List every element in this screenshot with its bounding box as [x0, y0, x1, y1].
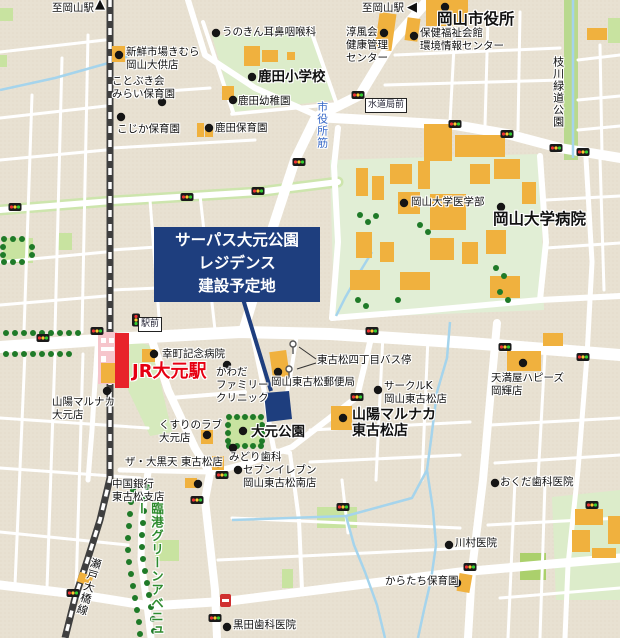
tree-icon	[134, 607, 140, 613]
tree-icon	[417, 222, 423, 228]
tree-icon	[140, 520, 146, 526]
tree-icon	[132, 595, 138, 601]
landmark-building	[470, 164, 490, 184]
landmark-building	[356, 168, 368, 196]
landmark-building	[462, 242, 478, 264]
landmark-dot-icon	[117, 113, 125, 121]
traffic-signal-icon	[577, 148, 590, 156]
tree-icon	[259, 422, 265, 428]
tree-icon	[66, 351, 72, 357]
landmark-dot-icon	[203, 431, 211, 439]
traffic-signal-icon	[252, 187, 265, 195]
tree-icon	[128, 571, 134, 577]
landmark-dot-icon	[497, 203, 505, 211]
traffic-signal-icon	[181, 193, 194, 201]
tree-icon	[365, 219, 371, 225]
traffic-signal-icon	[586, 501, 599, 509]
tree-icon	[139, 544, 145, 550]
map-canvas: 至岡山駅 ▲ うのきん耳鼻咽喉科 新鮮市場きむら 岡山大供店 ことぶき会 みらい…	[0, 0, 620, 638]
tree-icon	[125, 535, 131, 541]
tree-icon	[125, 547, 131, 553]
tree-icon	[57, 330, 63, 336]
landmark-dot-icon	[223, 361, 231, 369]
landmark-dot-icon	[234, 466, 242, 474]
traffic-signal-icon	[132, 314, 140, 327]
landmark-building	[575, 509, 603, 525]
landmark-building	[543, 333, 563, 346]
landmark-building	[372, 176, 384, 200]
landmark-dot-icon	[441, 3, 449, 11]
traffic-signal-icon	[464, 563, 477, 571]
station-building	[115, 333, 129, 388]
tree-icon	[355, 297, 361, 303]
tree-icon	[146, 592, 152, 598]
road	[518, 12, 520, 130]
station-detail	[101, 356, 106, 362]
tree-icon	[493, 265, 499, 271]
tree-icon	[130, 487, 136, 493]
construction-site-label: サーパス大元公園 レジデンス 建設予定地	[154, 227, 320, 302]
landmark-dot-icon	[115, 51, 123, 59]
tree-icon	[130, 583, 136, 589]
tree-icon	[3, 330, 9, 336]
green-area	[58, 233, 72, 250]
green-area	[564, 0, 578, 160]
tree-icon	[0, 252, 6, 258]
traffic-signal-icon	[501, 130, 514, 138]
tree-icon	[128, 499, 134, 505]
tree-icon	[126, 523, 132, 529]
station-detail	[101, 347, 114, 351]
traffic-signal-icon	[9, 203, 22, 211]
tree-icon	[141, 508, 147, 514]
landmark-building	[608, 516, 620, 544]
landmark-dot-icon	[491, 479, 499, 487]
tree-icon	[144, 484, 150, 490]
landmark-building	[424, 124, 452, 161]
tree-icon	[57, 351, 63, 357]
landmark-dot-icon	[212, 29, 220, 37]
tree-icon	[258, 414, 264, 420]
station-detail	[101, 338, 106, 343]
tree-icon	[1, 236, 7, 242]
landmark-building	[356, 232, 372, 258]
landmark-dot-icon	[103, 387, 111, 395]
tree-icon	[150, 616, 156, 622]
tree-icon	[75, 330, 81, 336]
tree-icon	[12, 351, 18, 357]
tree-icon	[363, 303, 369, 309]
site-polygon	[264, 391, 292, 422]
tree-icon	[139, 532, 145, 538]
tree-icon	[151, 628, 157, 634]
landmark-dot-icon	[239, 427, 247, 435]
tree-icon	[259, 430, 265, 436]
traffic-signal-icon	[449, 120, 462, 128]
landmark-dot-icon	[519, 359, 527, 367]
tree-icon	[148, 604, 154, 610]
tree-icon	[225, 430, 231, 436]
tree-icon	[29, 244, 35, 250]
landmark-dot-icon	[158, 98, 166, 106]
tree-icon	[1, 259, 7, 265]
landmark-dot-icon	[400, 199, 408, 207]
green-area	[0, 8, 13, 21]
tree-icon	[127, 511, 133, 517]
traffic-signal-icon	[191, 496, 204, 504]
landmark-building	[572, 530, 590, 552]
tree-icon	[357, 212, 363, 218]
green-area	[155, 540, 179, 561]
landmark-building	[262, 50, 278, 62]
tree-icon	[29, 252, 35, 258]
tree-icon	[10, 259, 16, 265]
traffic-signal-icon	[91, 327, 104, 335]
landmark-dot-icon	[339, 414, 347, 422]
tree-icon	[234, 414, 240, 420]
tree-icon	[10, 236, 16, 242]
tree-icon	[21, 330, 27, 336]
tree-icon	[21, 351, 27, 357]
tree-icon	[258, 443, 264, 449]
tree-icon	[48, 351, 54, 357]
traffic-signal-icon	[352, 91, 365, 99]
tree-icon	[373, 213, 379, 219]
road	[120, 470, 210, 472]
landmark-building	[490, 276, 520, 298]
landmark-building	[390, 164, 412, 184]
tree-icon	[30, 351, 36, 357]
traffic-signal-icon	[577, 353, 590, 361]
landmark-dot-icon	[214, 459, 222, 467]
landmark-building	[430, 194, 466, 230]
tree-icon	[505, 297, 511, 303]
tree-icon	[395, 297, 401, 303]
landmark-dot-icon	[205, 124, 213, 132]
landmark-building	[522, 182, 536, 204]
station-detail	[109, 338, 114, 343]
tree-icon	[0, 244, 6, 250]
landmark-dot-icon	[380, 29, 388, 37]
green-area	[282, 569, 293, 588]
landmark-dot-icon	[445, 541, 453, 549]
landmark-dot-icon	[374, 386, 382, 394]
landmark-dot-icon	[410, 32, 418, 40]
traffic-signal-icon	[550, 144, 563, 152]
landmark-dot-icon	[194, 480, 202, 488]
traffic-signal-icon	[209, 614, 222, 622]
landmark-building	[592, 548, 616, 558]
landmark-dot-icon	[248, 73, 256, 81]
traffic-signal-icon	[351, 393, 364, 401]
tree-icon	[142, 568, 148, 574]
landmark-building	[244, 46, 260, 66]
landmark-building	[400, 272, 430, 290]
landmark-building	[430, 238, 454, 260]
green-area	[0, 55, 7, 67]
tree-icon	[226, 414, 232, 420]
landmark-building	[418, 161, 430, 189]
landmark-building	[287, 52, 295, 60]
tree-icon	[136, 619, 142, 625]
landmark-building	[197, 123, 204, 137]
tree-icon	[142, 496, 148, 502]
tree-icon	[250, 414, 256, 420]
traffic-signal-icon	[499, 343, 512, 351]
tree-icon	[225, 438, 231, 444]
landmark-dot-icon	[150, 350, 158, 358]
tree-icon	[242, 443, 248, 449]
traffic-signal-icon	[67, 589, 80, 597]
landmark-building	[587, 28, 607, 40]
tree-icon	[144, 580, 150, 586]
landmark-building	[494, 159, 520, 179]
tree-icon	[19, 259, 25, 265]
road	[600, 45, 602, 155]
tree-icon	[137, 631, 143, 637]
landmark-building	[380, 242, 394, 262]
landmark-building	[350, 270, 380, 290]
tree-icon	[250, 443, 256, 449]
tree-icon	[39, 351, 45, 357]
tree-icon	[501, 273, 507, 279]
tree-icon	[66, 330, 72, 336]
no-entry-sign-icon	[220, 594, 231, 607]
tree-icon	[126, 559, 132, 565]
landmark-dot-icon	[453, 579, 461, 587]
landmark-building	[101, 363, 115, 383]
landmark-building	[486, 230, 506, 254]
tree-icon	[242, 414, 248, 420]
traffic-signal-icon	[337, 503, 350, 511]
bus-stop-pole-icon	[286, 366, 292, 372]
landmark-dot-icon	[274, 368, 282, 376]
traffic-signal-icon	[366, 327, 379, 335]
tree-icon	[497, 289, 503, 295]
bus-stop-pole-icon	[290, 341, 296, 347]
tree-icon	[30, 330, 36, 336]
map-base-layer	[0, 0, 620, 638]
tree-icon	[225, 422, 231, 428]
traffic-signal-icon	[216, 471, 229, 479]
tree-icon	[3, 351, 9, 357]
traffic-signal-icon	[293, 158, 306, 166]
traffic-signal-icon	[37, 334, 50, 342]
tree-icon	[425, 229, 431, 235]
landmark-dot-icon	[223, 623, 231, 631]
tree-icon	[259, 438, 265, 444]
green-area	[608, 18, 620, 43]
tree-icon	[12, 330, 18, 336]
tree-icon	[19, 236, 25, 242]
landmark-dot-icon	[229, 96, 237, 104]
tree-icon	[140, 556, 146, 562]
landmark-building	[455, 135, 505, 157]
landmark-dot-icon	[229, 444, 237, 452]
